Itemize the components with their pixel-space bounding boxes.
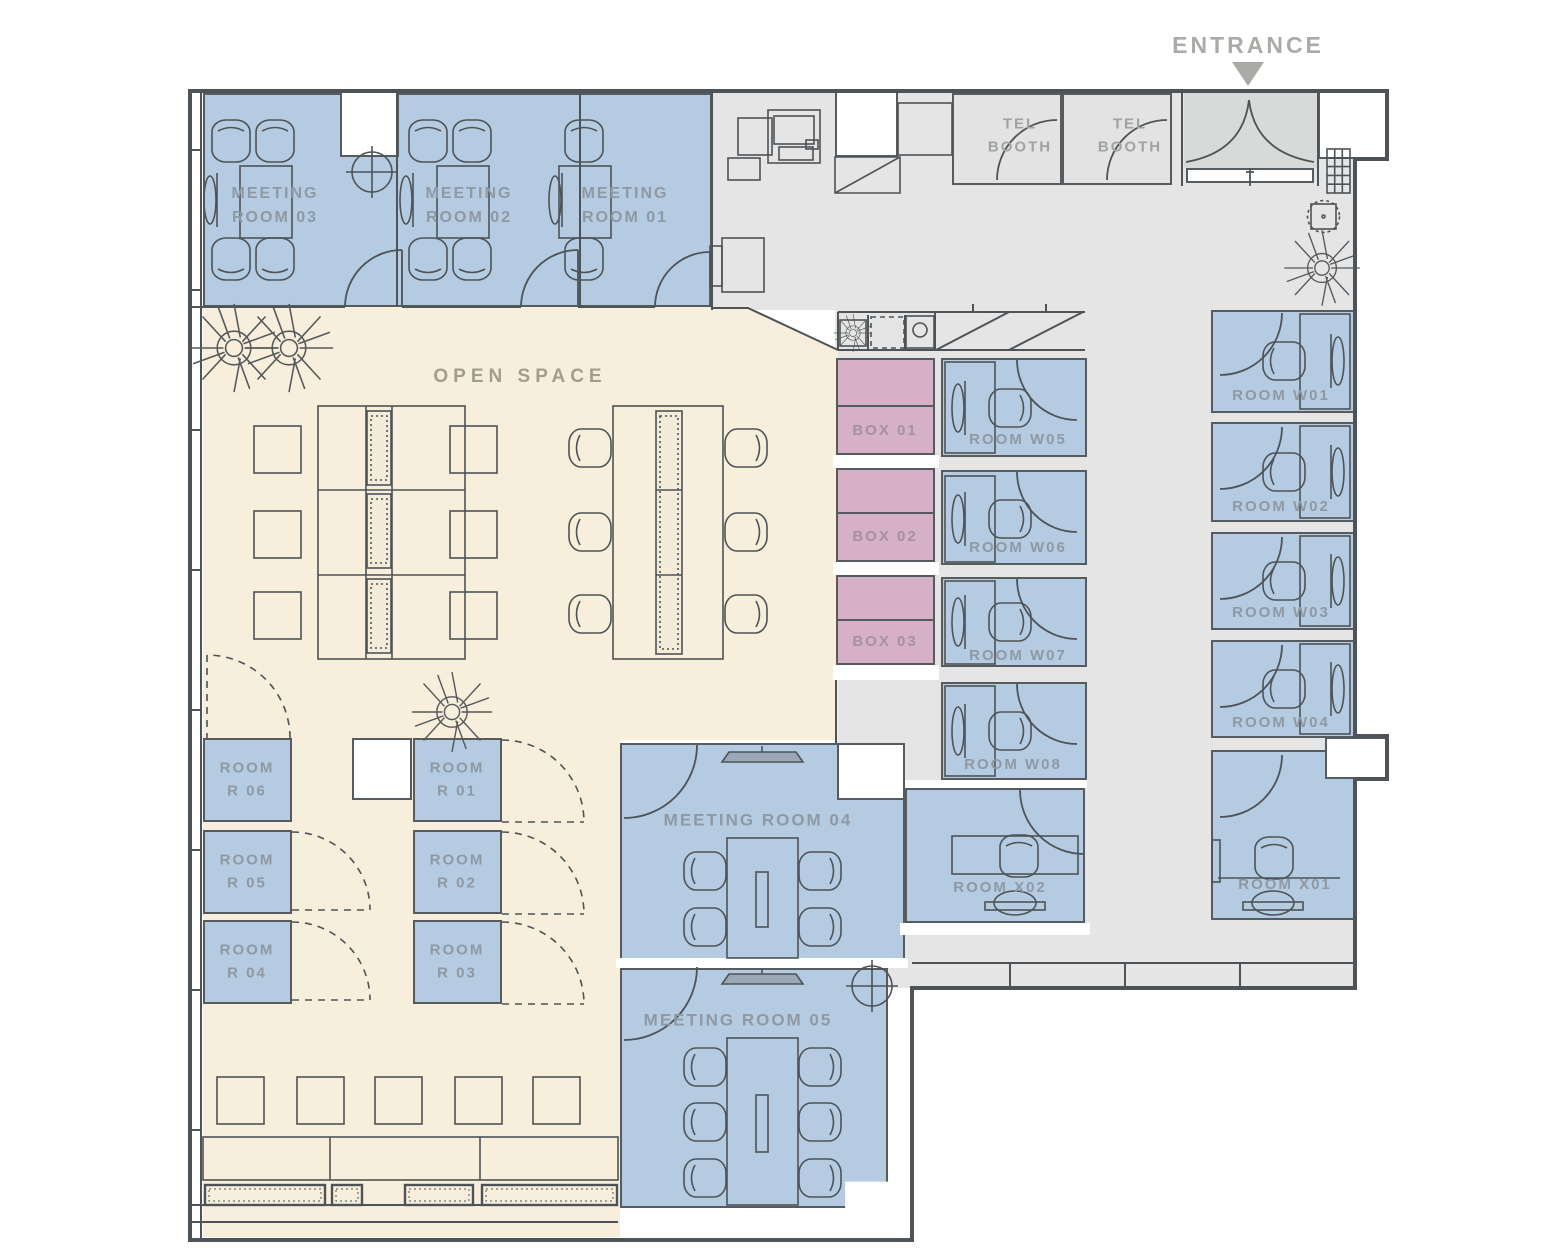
wall-gap [833, 562, 939, 575]
meeting-room-01-label: MEETING ROOM 01 [582, 182, 669, 230]
entrance-label: ENTRANCE [1172, 28, 1324, 63]
wall-gap [833, 665, 939, 680]
meeting-room-03-label: MEETING ROOM 03 [232, 182, 319, 230]
tel-booth-1-label: TEL BOOTH [988, 114, 1052, 159]
room-r03-label: ROOM R 03 [430, 940, 485, 985]
wall-gap [905, 780, 1087, 788]
room-r05-label: ROOM R 05 [220, 850, 275, 895]
room-r04-label: ROOM R 04 [220, 940, 275, 985]
pillar [835, 91, 898, 157]
wall-gap [900, 923, 1090, 935]
entrance-arrow-icon [1232, 62, 1264, 86]
room-w03-label: ROOM W03 [1232, 602, 1330, 625]
room-w05-label: ROOM W05 [969, 429, 1067, 452]
meeting-room-05 [620, 968, 888, 1208]
pillar [1325, 737, 1387, 779]
room-x02-label: ROOM X02 [953, 877, 1047, 900]
floor-plan: ENTRANCE OPEN SPACE MEETING ROOM 03 MEET… [0, 0, 1550, 1260]
pillar [837, 743, 905, 800]
entrance-vestibule [1184, 93, 1318, 168]
open-space-label: OPEN SPACE [433, 363, 606, 392]
entrance-threshold [1186, 168, 1314, 183]
room-w06-label: ROOM W06 [969, 537, 1067, 560]
pillar [1318, 91, 1388, 159]
room-r02-label: ROOM R 02 [430, 850, 485, 895]
box-03-label: BOX 03 [852, 631, 917, 654]
room-w08-label: ROOM W08 [964, 754, 1062, 777]
meeting-room-02-label: MEETING ROOM 02 [426, 182, 513, 230]
box-01-label: BOX 01 [852, 420, 917, 443]
room-w02-label: ROOM W02 [1232, 496, 1330, 519]
room-r06-label: ROOM R 06 [220, 758, 275, 803]
room-w01-label: ROOM W01 [1232, 385, 1330, 408]
meeting-room-04-label: MEETING ROOM 04 [664, 807, 853, 833]
box-02-label: BOX 02 [852, 526, 917, 549]
pillar [340, 91, 399, 157]
room-w07-label: ROOM W07 [969, 645, 1067, 668]
room-w04-label: ROOM W04 [1232, 712, 1330, 735]
room-r01-label: ROOM R 01 [430, 758, 485, 803]
meeting-room-05-label: MEETING ROOM 05 [644, 1007, 833, 1033]
room-x02 [905, 788, 1085, 923]
pillar [352, 738, 412, 800]
tel-booth-2-label: TEL BOOTH [1098, 114, 1162, 159]
exterior-bottom-right [912, 990, 1388, 1260]
room-x01-label: ROOM X01 [1238, 874, 1332, 897]
wall-gap [833, 455, 939, 468]
wall-gap [616, 958, 908, 968]
